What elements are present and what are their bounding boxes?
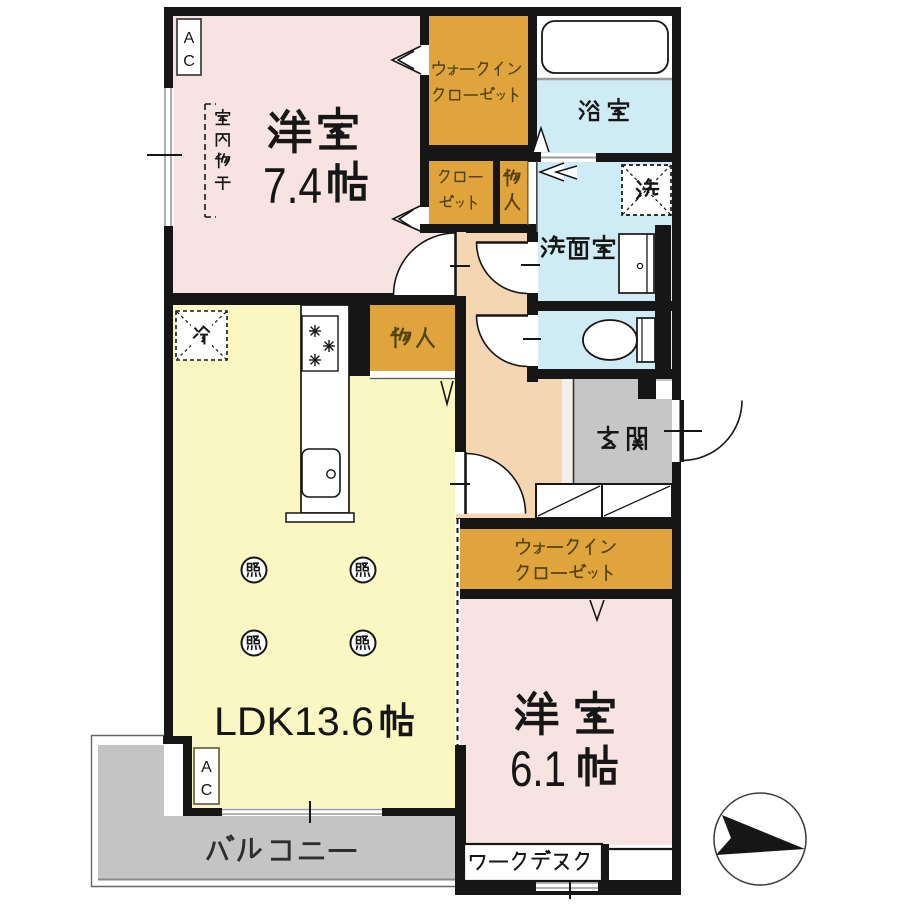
svg-text:A: A: [184, 30, 195, 47]
svg-text:A: A: [201, 759, 212, 776]
svg-text:6.1: 6.1: [510, 741, 566, 797]
svg-text:7.4: 7.4: [263, 158, 322, 214]
svg-text:C: C: [183, 53, 195, 70]
svg-text:C: C: [201, 782, 213, 799]
svg-text:LDK13.6: LDK13.6: [214, 700, 374, 744]
